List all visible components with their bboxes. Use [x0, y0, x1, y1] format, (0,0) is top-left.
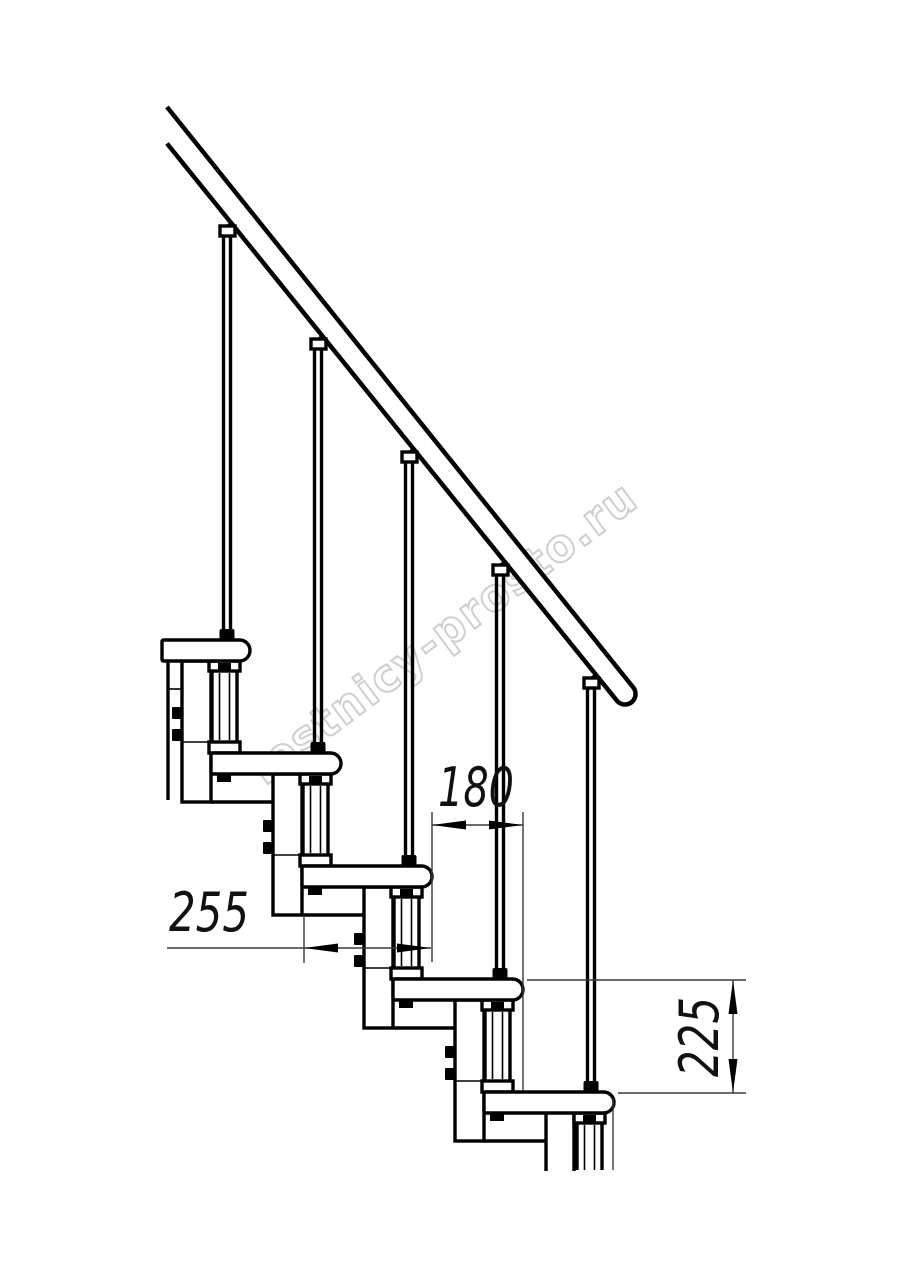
baluster-base-icon — [584, 1081, 599, 1092]
bolt-icon — [354, 933, 364, 945]
dim-label-step-rise: 225 — [668, 997, 731, 1077]
nut-icon — [218, 663, 231, 670]
baluster-5 — [584, 673, 601, 1093]
baluster-base-icon — [493, 968, 508, 979]
bolt-icon — [263, 820, 273, 832]
nut-icon — [491, 1002, 504, 1009]
baluster-base-icon — [311, 742, 326, 753]
bolt-icon — [263, 842, 273, 854]
staircase-drawing: lestnicy-prosto.ru — [0, 0, 914, 1280]
handrail — [167, 107, 636, 705]
nut-icon — [583, 1115, 596, 1122]
dim-label-step-run: 180 — [438, 756, 514, 819]
tread-2 — [211, 753, 341, 774]
dim-label-tread-depth: 255 — [169, 881, 249, 944]
support-tube-5 — [546, 1113, 574, 1171]
arrow-left-icon — [432, 821, 466, 830]
arrow-right-icon — [489, 821, 523, 830]
arrow-left-icon — [304, 944, 338, 953]
technical-drawing-page: lestnicy-prosto.ru — [0, 0, 914, 1280]
nut-icon — [309, 776, 322, 783]
tread-4 — [393, 979, 523, 1000]
bolt-icon — [354, 955, 364, 967]
tread-5 — [484, 1092, 614, 1113]
bolt-icon — [172, 729, 182, 741]
nut-icon — [400, 889, 413, 896]
bolt-icon — [172, 707, 182, 719]
baluster-base-icon — [402, 855, 417, 866]
baluster-1 — [220, 221, 237, 641]
tread-3 — [302, 866, 432, 887]
bolt-icon — [445, 1046, 455, 1058]
bolt-icon — [445, 1068, 455, 1080]
baluster-base-icon — [220, 629, 235, 640]
dimension-step-rise-225: 225 — [527, 980, 746, 1093]
tread-1 — [162, 640, 250, 661]
post-5 — [574, 1113, 605, 1170]
